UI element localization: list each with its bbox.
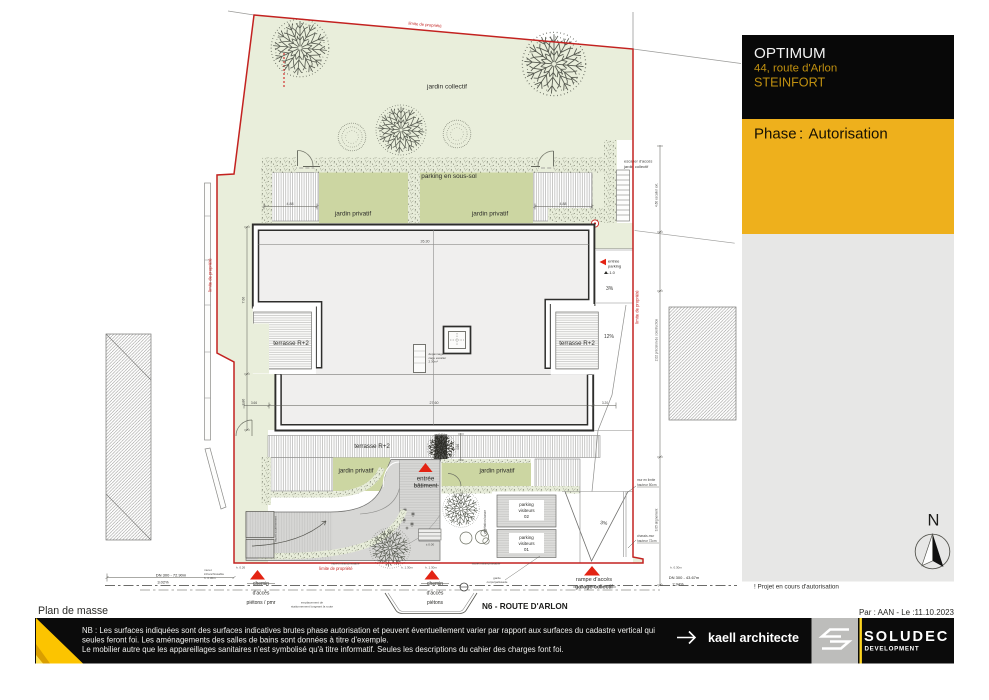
svg-text:NB : Les surfaces indiquées so: NB : Les surfaces indiquées sont des sur… xyxy=(82,626,655,635)
svg-text:chemin: chemin xyxy=(427,581,443,587)
svg-text:muret soutènement: muret soutènement xyxy=(274,516,278,542)
svg-text:3%: 3% xyxy=(606,286,614,292)
svg-text::: : xyxy=(799,126,803,143)
svg-text:mur en limite: mur en limite xyxy=(637,478,655,482)
svg-text:jardin privatif: jardin privatif xyxy=(471,211,508,218)
svg-text:Plan de masse: Plan de masse xyxy=(38,605,108,617)
svg-text:12%: 12% xyxy=(604,334,615,340)
svg-text:stationnement longeant la rout: stationnement longeant la route xyxy=(291,605,333,609)
svg-text:visiteurs: visiteurs xyxy=(518,541,535,546)
svg-text:jardin collectif: jardin collectif xyxy=(623,164,649,169)
svg-text:limite de propriété: limite de propriété xyxy=(319,566,353,571)
svg-text:terrasse R+2: terrasse R+2 xyxy=(354,443,390,450)
svg-text:DN 300 - 43.67m: DN 300 - 43.67m xyxy=(669,575,700,580)
svg-text:OPTIMUM: OPTIMUM xyxy=(754,45,826,62)
svg-text:± 0.00: ± 0.00 xyxy=(426,543,435,547)
svg-text:h. 0.30m: h. 0.30m xyxy=(204,576,216,580)
svg-text:chemin: chemin xyxy=(253,581,269,587)
svg-text:hauteur 50cm: hauteur 50cm xyxy=(637,483,657,487)
svg-text:h. 1.30m: h. 1.30m xyxy=(401,566,413,570)
svg-text:3.20: 3.20 xyxy=(602,401,608,405)
svg-text:SOLUDEC: SOLUDEC xyxy=(864,629,949,645)
svg-text:h. 1.30m: h. 1.30m xyxy=(425,566,437,570)
svg-text:-1.0: -1.0 xyxy=(608,270,616,275)
svg-text:chassis-mur: chassis-mur xyxy=(637,534,655,538)
svg-text:27.60: 27.60 xyxy=(430,401,439,405)
svg-text:hauteur 72cm: hauteur 72cm xyxy=(637,539,657,543)
svg-text:limite de propriété: limite de propriété xyxy=(635,290,640,324)
svg-text:escalier d'accès: escalier d'accès xyxy=(624,159,652,164)
svg-text:Le mobilier autre que les appa: Le mobilier autre que les appareillages … xyxy=(82,645,563,654)
svg-text:7.66: 7.66 xyxy=(242,297,246,304)
svg-text:d'accès: d'accès xyxy=(427,591,444,597)
svg-text:4.66: 4.66 xyxy=(456,444,460,450)
svg-text:Phase: Phase xyxy=(754,126,797,143)
svg-text:h. 0.26: h. 0.26 xyxy=(236,566,246,570)
svg-text:N6 - ROUTE D'ARLON: N6 - ROUTE D'ARLON xyxy=(482,602,568,611)
svg-text:piétons: piétons xyxy=(427,600,444,606)
svg-text:rampe d'accès: rampe d'accès xyxy=(576,577,612,583)
svg-text:3.05 alignement: 3.05 alignement xyxy=(655,509,659,532)
svg-text:d'accès: d'accès xyxy=(253,591,270,597)
svg-text:4.88: 4.88 xyxy=(287,202,294,206)
svg-text:garage collectif: garage collectif xyxy=(575,585,613,591)
svg-text:muret infranchissable: muret infranchissable xyxy=(472,562,501,566)
svg-text:seules feront foi. Les aménage: seules feront foi. Les aménagements des … xyxy=(82,636,389,645)
svg-text:jardin collectif: jardin collectif xyxy=(426,84,467,91)
svg-text:DEVELOPMENT: DEVELOPMENT xyxy=(865,646,920,653)
svg-text:bâtiment: bâtiment xyxy=(414,483,438,490)
svg-text:entrée: entrée xyxy=(417,476,435,483)
svg-text:2.02 précision de construction: 2.02 précision de construction xyxy=(655,319,659,362)
svg-text:parking: parking xyxy=(519,502,534,507)
svg-text:piétons / pmr: piétons / pmr xyxy=(247,600,276,606)
svg-text:jardin privatif: jardin privatif xyxy=(478,468,514,475)
svg-text:01: 01 xyxy=(524,547,529,552)
svg-text:terrasse R+2: terrasse R+2 xyxy=(559,340,595,347)
svg-text:26.30: 26.30 xyxy=(421,240,430,244)
svg-text:h. 0.30m: h. 0.30m xyxy=(670,566,682,570)
svg-text:44, route d'Arlon: 44, route d'Arlon xyxy=(754,63,837,75)
svg-text:STEINFORT: STEINFORT xyxy=(754,76,825,90)
svg-text:corps/palissade: corps/palissade xyxy=(487,580,508,584)
svg-text:4.88: 4.88 xyxy=(560,202,567,206)
svg-text:jardin privatif: jardin privatif xyxy=(334,211,371,218)
svg-text:2.30m²: 2.30m² xyxy=(429,360,438,364)
svg-text:Par : AAN - Le :11.10.2023: Par : AAN - Le :11.10.2023 xyxy=(859,608,955,617)
svg-text:muret infranchissable: muret infranchissable xyxy=(331,562,360,566)
svg-text:N: N xyxy=(928,512,940,530)
svg-text:visiteurs: visiteurs xyxy=(518,508,535,513)
svg-text:02: 02 xyxy=(524,514,529,519)
svg-text:4.60 escalier ext.: 4.60 escalier ext. xyxy=(655,183,659,207)
svg-text:kaell architecte: kaell architecte xyxy=(708,631,799,645)
svg-text:2.86: 2.86 xyxy=(242,399,246,406)
svg-text:DN 300 - 72.90m: DN 300 - 72.90m xyxy=(156,573,187,578)
svg-text:3.02%: 3.02% xyxy=(157,580,169,585)
svg-text:parking en sous-sol: parking en sous-sol xyxy=(421,173,476,180)
svg-text:parking: parking xyxy=(608,264,621,269)
svg-text:parking: parking xyxy=(519,535,534,540)
svg-text:terrasse R+2: terrasse R+2 xyxy=(273,340,309,347)
svg-text:Autorisation: Autorisation xyxy=(809,126,888,143)
svg-text:! Projet en cours d'autorisati: ! Projet en cours d'autorisation xyxy=(754,584,839,591)
svg-text:végétation basse: végétation basse xyxy=(483,510,487,534)
svg-text:3%: 3% xyxy=(600,520,609,527)
svg-text:2.94%: 2.94% xyxy=(672,582,684,587)
svg-text:3.66: 3.66 xyxy=(251,401,257,405)
svg-text:jardin privatif: jardin privatif xyxy=(337,468,373,475)
svg-text:limite de propriété: limite de propriété xyxy=(208,258,213,292)
